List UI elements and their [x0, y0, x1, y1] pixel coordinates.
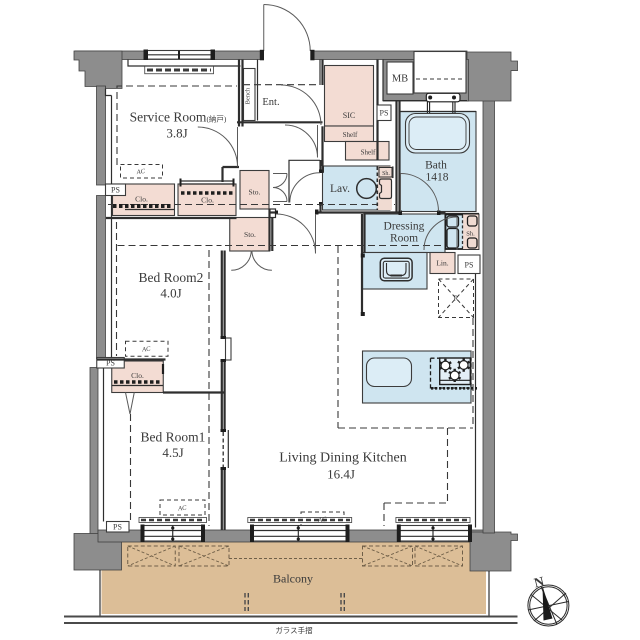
svg-text:Bench: Bench: [245, 87, 252, 104]
svg-text:Clo.: Clo.: [135, 195, 148, 204]
svg-text:Clo.: Clo.: [201, 196, 214, 205]
svg-text:ガラス手摺: ガラス手摺: [275, 625, 312, 635]
svg-text:3.8J: 3.8J: [166, 126, 187, 141]
svg-text:AC: AC: [317, 516, 328, 524]
svg-text:Sto.: Sto.: [249, 188, 261, 197]
svg-text:Lin.: Lin.: [436, 259, 448, 268]
svg-text:Bed Room1: Bed Room1: [141, 430, 206, 445]
svg-text:Balcony: Balcony: [273, 572, 313, 586]
svg-text:Bed Room2: Bed Room2: [139, 270, 204, 285]
svg-text:SIC: SIC: [343, 111, 355, 120]
svg-text:Lav.: Lav.: [330, 183, 350, 195]
svg-text:R: R: [454, 295, 459, 303]
svg-text:PS: PS: [465, 261, 474, 270]
svg-text:Dressing: Dressing: [384, 221, 425, 233]
svg-text:Clo.: Clo.: [131, 371, 144, 380]
svg-text:AC: AC: [141, 345, 152, 353]
svg-text:4.5J: 4.5J: [162, 445, 183, 460]
svg-text:Shelf: Shelf: [361, 149, 376, 157]
svg-text:Living Dining Kitchen: Living Dining Kitchen: [279, 451, 407, 466]
svg-text:PS: PS: [380, 109, 389, 118]
svg-text:AC: AC: [177, 504, 188, 512]
svg-text:Shelf: Shelf: [343, 131, 358, 139]
svg-text:Sh.: Sh.: [466, 231, 475, 238]
svg-text:PS: PS: [111, 186, 120, 195]
svg-text:Room: Room: [390, 233, 418, 245]
svg-text:PS: PS: [106, 359, 115, 368]
svg-text:Ent.: Ent.: [262, 97, 279, 108]
svg-text:4.0J: 4.0J: [160, 286, 181, 301]
svg-text:PS: PS: [113, 523, 122, 532]
svg-text:Sto.: Sto.: [244, 230, 256, 239]
svg-text:MB: MB: [392, 74, 408, 85]
svg-text:AC: AC: [135, 168, 146, 176]
svg-text:Bath: Bath: [425, 160, 447, 172]
svg-text:1418: 1418: [426, 172, 449, 184]
svg-text:Sh.: Sh.: [382, 171, 390, 177]
svg-text:16.4J: 16.4J: [327, 467, 355, 482]
